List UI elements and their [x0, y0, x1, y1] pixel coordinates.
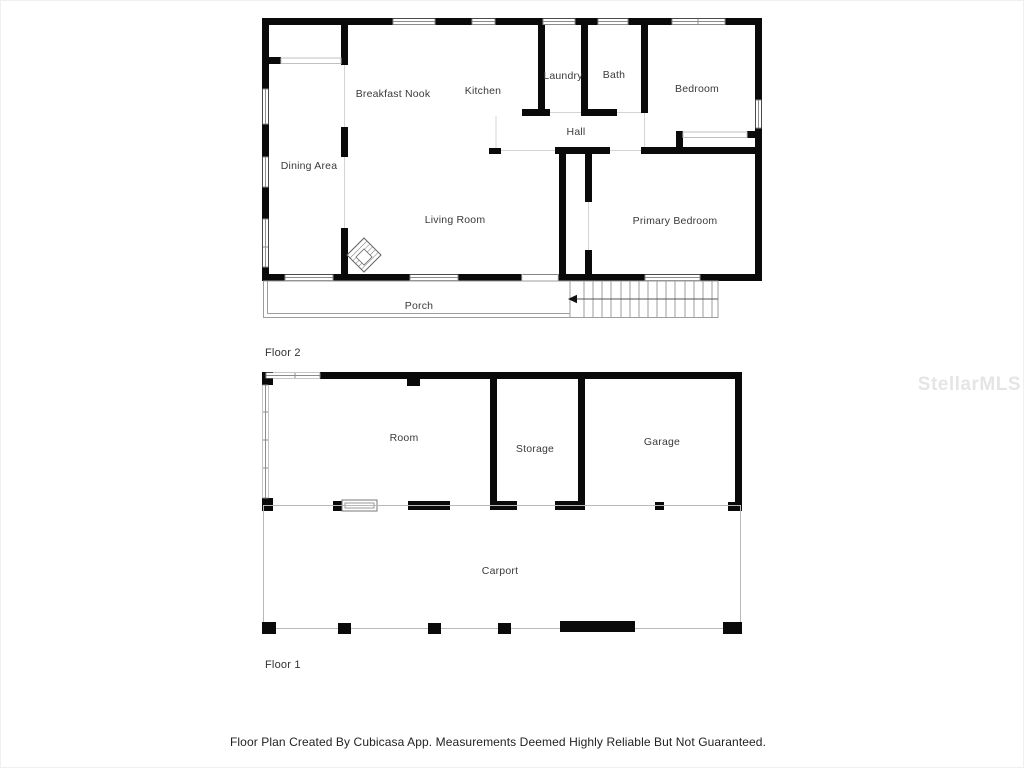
floor1-label: Floor 1	[265, 659, 301, 671]
room-label-storage: Storage	[516, 443, 554, 455]
room-label-hall: Hall	[567, 126, 586, 138]
room-label-primary-bedroom: Primary Bedroom	[633, 215, 718, 227]
room-label-laundry: Laundry	[543, 70, 583, 82]
room-label-kitchen: Kitchen	[465, 85, 501, 97]
room-label-porch: Porch	[405, 300, 433, 312]
room-label-carport: Carport	[482, 565, 518, 577]
floor1-plan: Room Storage Garage Carport Floor 1	[262, 372, 742, 671]
room-label-bath: Bath	[603, 69, 625, 81]
room-label-living-room: Living Room	[425, 214, 486, 226]
stair-direction-arrow	[568, 295, 577, 303]
stellar-mls-watermark: StellarMLS	[918, 374, 1021, 395]
closet-sliding-door	[281, 58, 341, 64]
stairs	[568, 281, 718, 318]
room-label-room: Room	[390, 432, 419, 444]
floor1-windows	[263, 373, 320, 498]
room-label-breakfast-nook: Breakfast Nook	[356, 88, 431, 100]
bedroom-closet-sliding-door	[683, 132, 747, 138]
room-label-dining-area: Dining Area	[281, 160, 337, 172]
fireplace-icon	[347, 238, 381, 272]
room-label-garage: Garage	[644, 436, 680, 448]
floorplan-canvas: Dining Area Breakfast Nook Kitchen Laund…	[0, 0, 1024, 768]
floor2-plan: Dining Area Breakfast Nook Kitchen Laund…	[262, 18, 762, 359]
floor2-interior-walls	[269, 18, 762, 274]
floor2-label: Floor 2	[265, 347, 301, 359]
footer-disclaimer: Floor Plan Created By Cubicasa App. Meas…	[230, 735, 766, 749]
room-label-bedroom: Bedroom	[675, 83, 719, 95]
